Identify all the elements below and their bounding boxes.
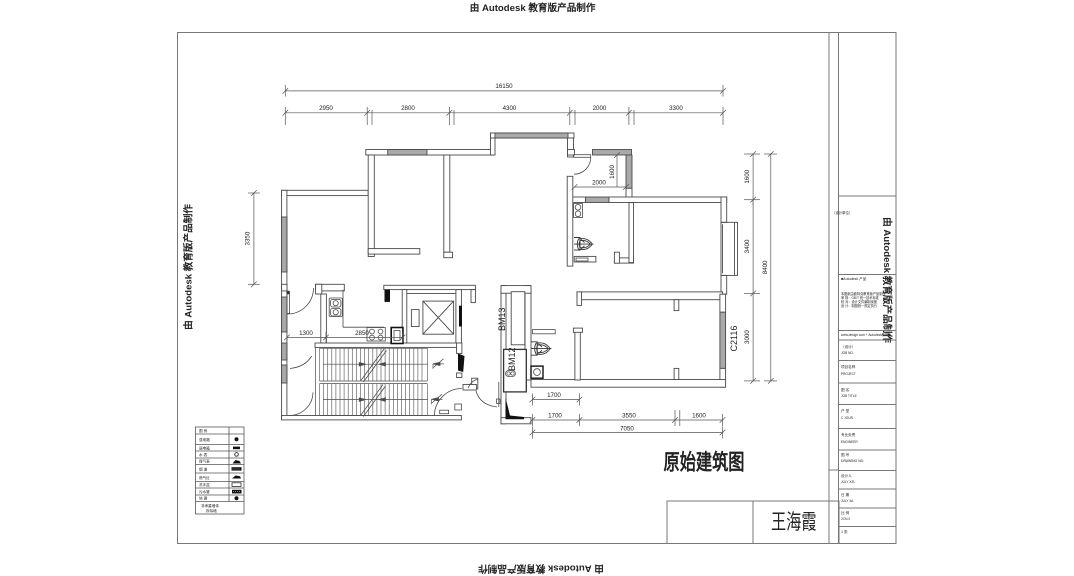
svg-text:7050: 7050 [620, 426, 634, 433]
svg-text:1300: 1300 [299, 330, 313, 337]
svg-text:3300: 3300 [669, 105, 683, 112]
svg-text:C2116: C2116 [729, 326, 739, 352]
svg-text:3000: 3000 [744, 330, 751, 344]
svg-text:煤气表: 煤气表 [199, 459, 210, 464]
svg-text:JULY XZL: JULY XZL [841, 480, 855, 484]
svg-text:2000: 2000 [592, 180, 606, 187]
svg-text:户 型: 户 型 [841, 408, 850, 413]
svg-text:1700: 1700 [548, 413, 562, 420]
svg-text:日 期: 日 期 [841, 492, 850, 497]
svg-text:■Autodesk 产品: ■Autodesk 产品 [841, 276, 867, 281]
svg-text:BM12: BM12 [507, 347, 517, 371]
svg-text:4300: 4300 [503, 105, 517, 112]
svg-text:原始建筑图: 原始建筑图 [664, 450, 745, 475]
svg-text:拆除墙: 拆除墙 [206, 508, 217, 513]
svg-text:比 例: 比 例 [841, 510, 850, 515]
svg-text:（设计）: （设计） [841, 344, 855, 349]
svg-text:燃气灶: 燃气灶 [199, 475, 210, 480]
svg-text:3550: 3550 [622, 413, 636, 420]
svg-text:3400: 3400 [744, 239, 751, 253]
svg-text:3350: 3350 [245, 231, 252, 245]
svg-text:水 表: 水 表 [199, 452, 208, 457]
svg-text:地 漏: 地 漏 [199, 496, 208, 501]
svg-text:1 张: 1 张 [841, 529, 848, 534]
svg-text:非承重墙体: 非承重墙体 [201, 503, 219, 508]
svg-text:JOB NO.: JOB NO. [841, 351, 854, 355]
svg-text:烟 道: 烟 道 [199, 466, 208, 471]
svg-text:ENGINEER: ENGINEER [841, 440, 858, 444]
svg-text:污水管: 污水管 [199, 489, 210, 494]
svg-text:2950: 2950 [319, 105, 333, 112]
svg-text:1600: 1600 [744, 169, 751, 183]
svg-text:图 名: 图 名 [841, 387, 850, 392]
svg-text:（设计单位）: （设计单位） [832, 210, 852, 215]
svg-text:设 计：制图统一规定执行: 设 计：制图统一规定执行 [841, 303, 878, 308]
svg-text:2000: 2000 [593, 105, 607, 112]
svg-text:专业负责: 专业负责 [841, 432, 856, 437]
svg-text:PROJECT: PROJECT [841, 372, 856, 376]
svg-text:由 Autodesk 教育版产品制作: 由 Autodesk 教育版产品制作 [470, 2, 596, 14]
svg-text:由 Autodesk 教育版产品制作: 由 Autodesk 教育版产品制作 [183, 204, 195, 330]
svg-text:C JOUR: C JOUR [841, 416, 854, 420]
svg-text:16150: 16150 [495, 83, 513, 90]
svg-text:项目名称: 项目名称 [841, 364, 856, 369]
svg-text:图 号: 图 号 [841, 452, 850, 457]
svg-text:弱电箱: 弱电箱 [199, 445, 210, 450]
svg-text:由 Autodesk 教育版产品制作: 由 Autodesk 教育版产品制作 [478, 563, 604, 575]
svg-text:王海霞: 王海霞 [771, 511, 817, 534]
svg-text:2800: 2800 [401, 105, 415, 112]
svg-text:8400: 8400 [762, 260, 769, 274]
svg-text:BM13: BM13 [497, 307, 507, 331]
svg-text:洗手盆: 洗手盆 [199, 482, 210, 487]
svg-text:JOB TITLE: JOB TITLE [841, 394, 857, 398]
svg-text:2CN.3: 2CN.3 [841, 517, 850, 521]
svg-text:JULY 4A: JULY 4A [841, 499, 854, 503]
svg-text:由 Autodesk 教育版产品制作: 由 Autodesk 教育版产品制作 [881, 217, 893, 343]
svg-text:1600: 1600 [692, 413, 706, 420]
svg-text:2850: 2850 [355, 330, 369, 337]
svg-text:DRAWING NO.: DRAWING NO. [841, 459, 864, 463]
svg-text:强电箱: 强电箱 [199, 437, 210, 442]
svg-text:1600: 1600 [609, 165, 616, 179]
svg-text:图 例: 图 例 [199, 428, 208, 433]
svg-text:1700: 1700 [547, 392, 561, 399]
svg-text:www.design.com + Autodesk教育版: www.design.com + Autodesk教育版 [841, 332, 892, 337]
svg-text:设计人: 设计人 [841, 473, 852, 478]
